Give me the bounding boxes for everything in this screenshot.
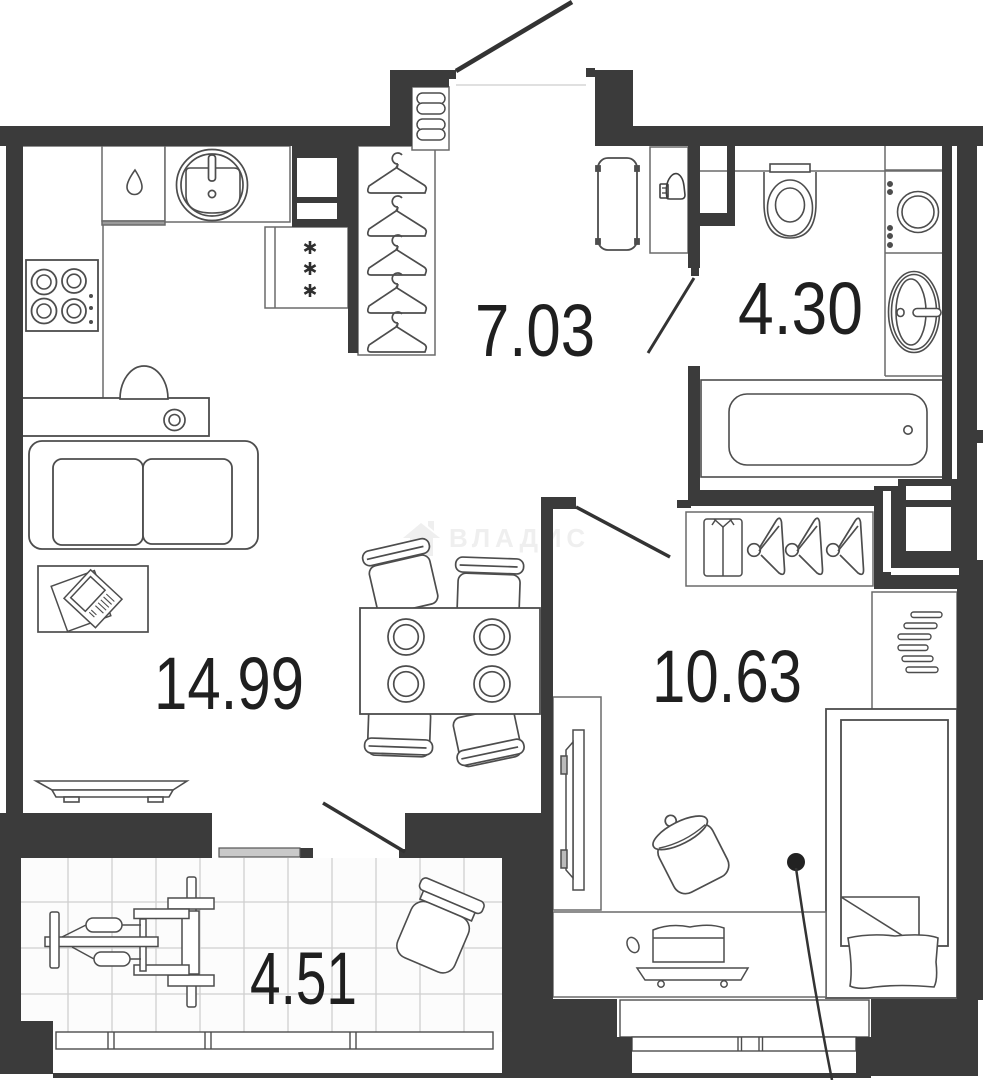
svg-text:4.51: 4.51 [250, 937, 357, 1020]
svg-text:14.99: 14.99 [154, 642, 304, 725]
svg-text:7.03: 7.03 [475, 289, 595, 372]
svg-text:ВЛАДИС: ВЛАДИС [449, 523, 590, 553]
svg-text:10.63: 10.63 [652, 635, 802, 718]
svg-text:4.30: 4.30 [738, 267, 863, 350]
